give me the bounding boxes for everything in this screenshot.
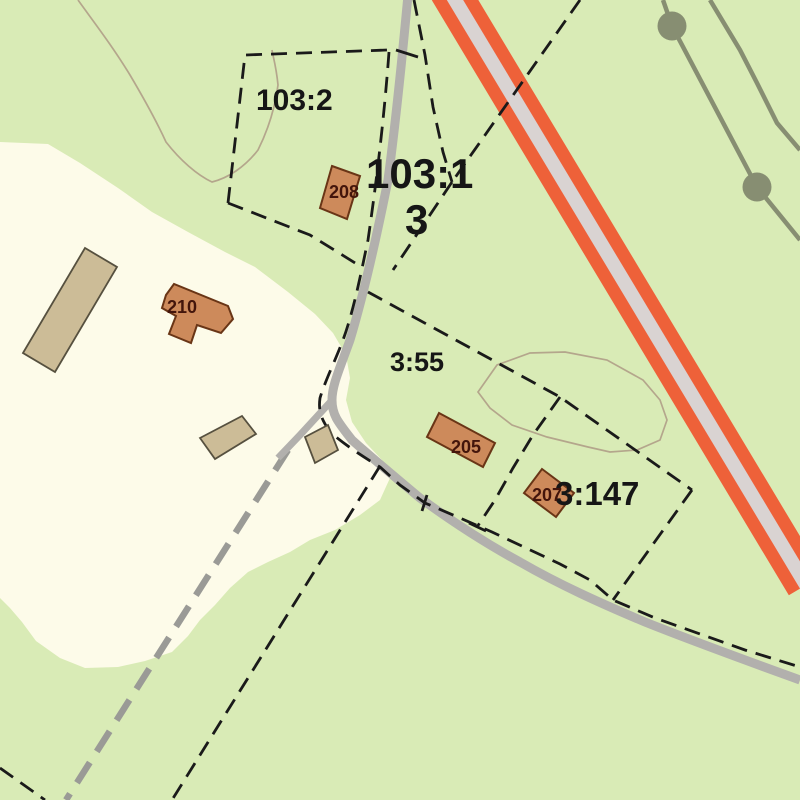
parcel-label-103-2: 103:2 [256, 84, 333, 117]
parcel-label-3-147: 3:147 [555, 475, 639, 512]
map-canvas[interactable]: 103:2 103:1 3 3:55 3:147 208 210 205 207 [0, 0, 800, 800]
cadastral-map: 103:2 103:1 3 3:55 3:147 208 210 205 207 [0, 0, 800, 800]
parcel-label-3-55: 3:55 [390, 347, 444, 377]
building-label-210: 210 [167, 297, 197, 317]
building-label-208: 208 [329, 182, 359, 202]
power-pole-marker [743, 173, 772, 202]
power-pole-marker [658, 12, 687, 41]
building-label-205: 205 [451, 437, 481, 457]
building-label-207: 207 [532, 485, 562, 505]
parcel-label-3: 3 [405, 196, 428, 243]
parcel-label-103-1: 103:1 [366, 150, 473, 197]
